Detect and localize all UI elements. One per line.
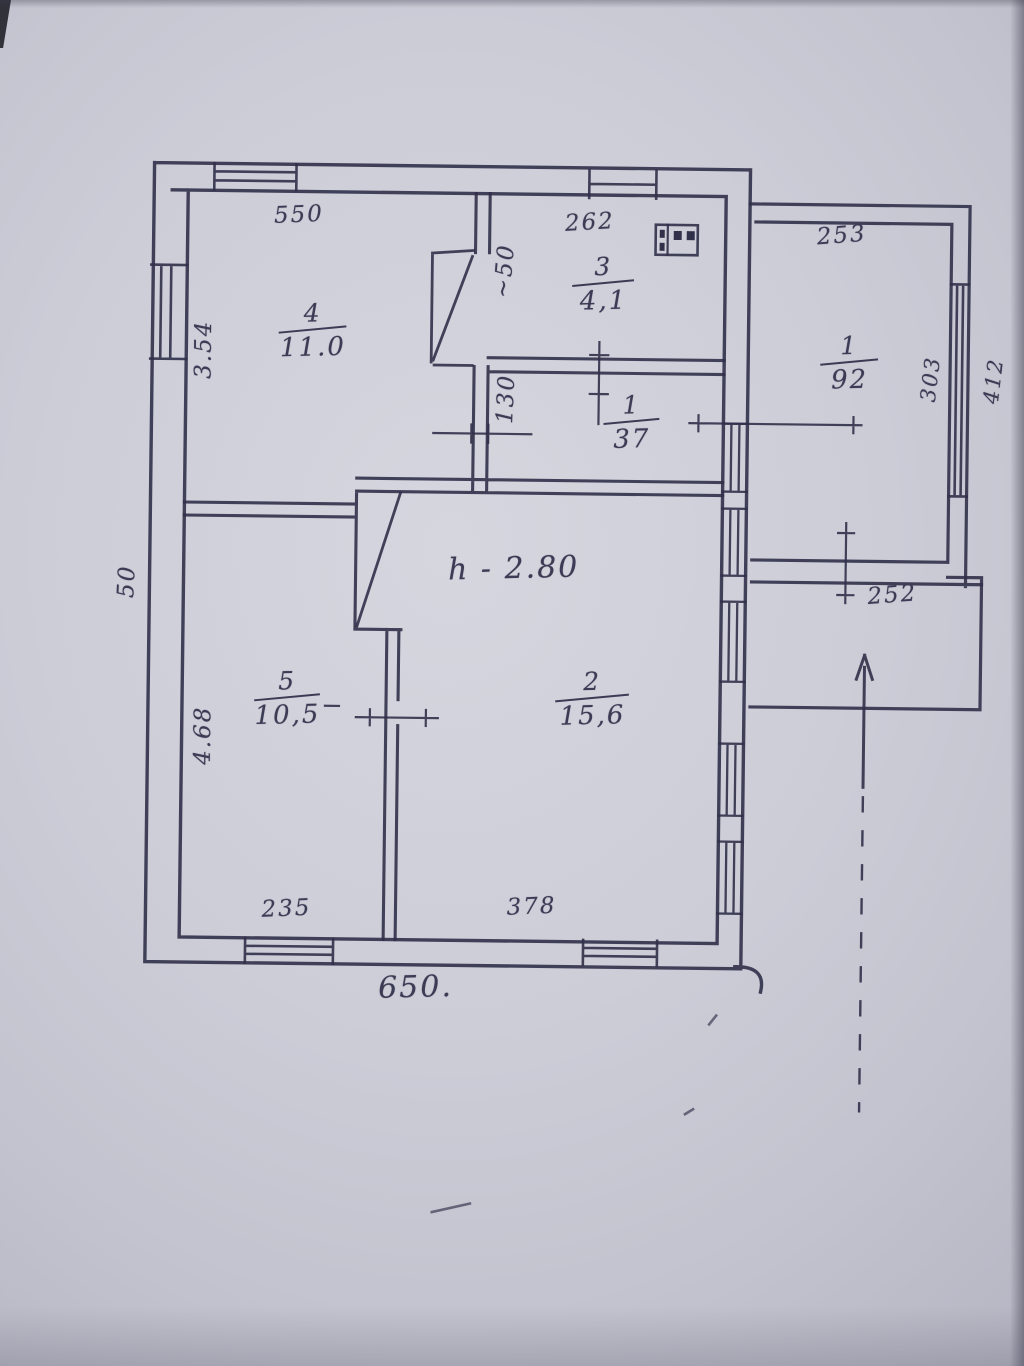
floor-plan-tilt-wrapper: 4 11.0 3 4,1 1 92 1 37 5 10,5 2 15,6	[0, 0, 1024, 1366]
dim-room2-width-bottom: 378	[506, 895, 557, 920]
room-area: 37	[604, 426, 661, 453]
dim-house-width-total: 650.	[378, 972, 453, 1004]
room-label-5: 5 10,5	[253, 668, 320, 729]
dim-annex-width-top: 253	[816, 223, 867, 250]
dim-closet-width: ~50	[492, 243, 519, 299]
porch-walls	[750, 575, 982, 710]
dim-room3-width-top: 262	[564, 210, 615, 236]
room-area: 15,6	[555, 702, 630, 730]
closet-door-leaf	[431, 250, 473, 365]
room-number: 2	[554, 668, 629, 695]
floor-plan-drawing	[0, 0, 1024, 1366]
dim-room4-width-top: 550	[274, 203, 325, 228]
room-area: 10,5	[254, 702, 321, 729]
room-label-annex: 1 92	[820, 332, 879, 393]
dim-annex-height-outer: 412	[981, 357, 1007, 405]
dim-left-wall-note: 50	[115, 564, 140, 598]
scanned-floor-plan-photo: 4 11.0 3 4,1 1 92 1 37 5 10,5 2 15,6	[0, 0, 1024, 1366]
dim-porch-width: 252	[867, 582, 918, 609]
room-label-3: 3 4,1	[571, 253, 634, 314]
room-area: 92	[820, 366, 879, 393]
room-area: 11.0	[279, 334, 348, 362]
annex-walls	[745, 204, 986, 587]
pen-marks	[432, 1012, 716, 1215]
room-number: 1	[820, 332, 879, 358]
room-number: 5	[253, 668, 320, 694]
dim-room5-width-bottom: 235	[261, 897, 312, 922]
room-number: 3	[571, 253, 634, 279]
room-number: 1	[603, 392, 660, 418]
ceiling-height-note: h - 2.80	[448, 553, 580, 586]
stove-symbol	[656, 225, 698, 256]
room-area: 4,1	[572, 287, 635, 314]
room-label-2: 2 15,6	[554, 668, 629, 730]
dim-annex-height-inner: 303	[918, 355, 944, 403]
dim-room5-height-left: 4.68	[192, 706, 216, 765]
room-label-hall: 1 37	[603, 392, 660, 453]
dim-room4-height-left: 3.54	[192, 319, 216, 378]
room-number: 4	[278, 300, 347, 327]
room2-door-leaf	[357, 492, 401, 627]
room-label-4: 4 11.0	[278, 300, 347, 362]
dim-hall-width: 130	[494, 373, 519, 424]
entrance-arrow	[851, 655, 873, 1111]
